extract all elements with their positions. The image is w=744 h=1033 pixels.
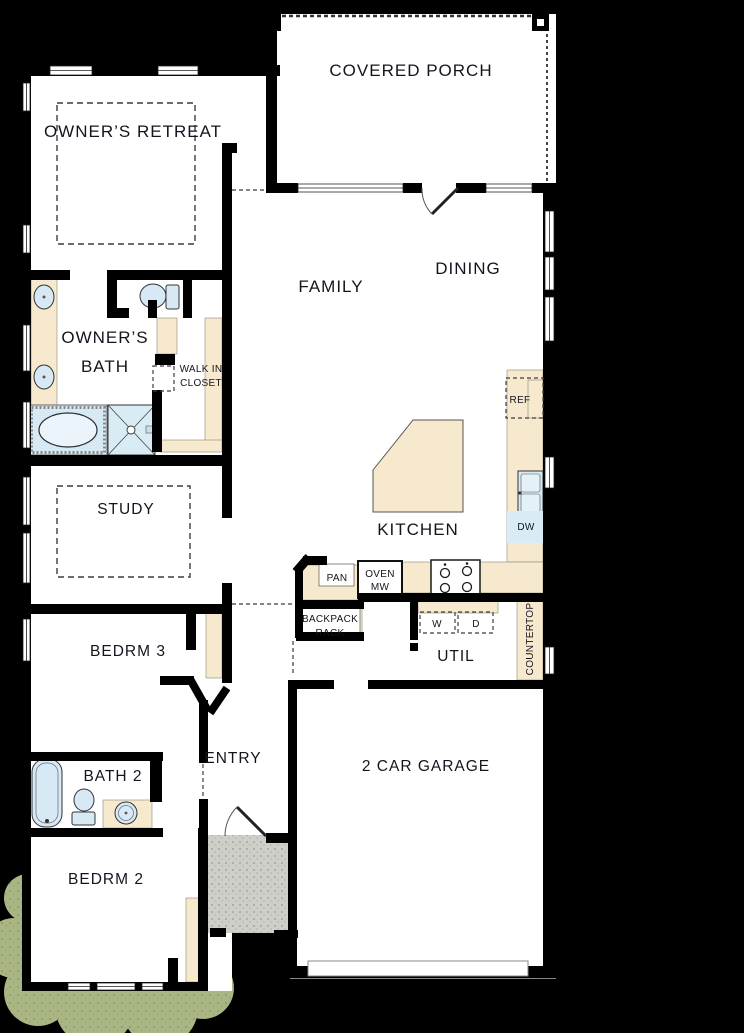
fixture-label-washer: W [432, 619, 442, 630]
floor-plan-drawing: COVERED PORCH OWNER’S RETREAT FAMILY DIN… [0, 0, 744, 1033]
room-label-kitchen: KITCHEN [377, 520, 459, 539]
room-label-walk-in-closet-1: WALK IN [180, 364, 223, 375]
room-label-utility: UTIL [437, 648, 475, 665]
fixture-label-mw: MW [371, 582, 390, 593]
room-label-bedroom3: BEDRM 3 [90, 643, 166, 660]
fixture-label-oven: OVEN [365, 569, 395, 580]
room-label-owners-bath-1: OWNER’S [61, 328, 148, 347]
fixture-label-dw: DW [517, 522, 535, 533]
fixture-label-backpack: BACKPACK [302, 614, 358, 625]
room-label-covered-porch: COVERED PORCH [329, 61, 492, 80]
fixture-label-rack: RACK [316, 628, 345, 639]
fixture-label-pantry: PAN [327, 573, 348, 584]
entry-stoop [206, 835, 289, 933]
cooktop [431, 560, 480, 597]
room-label-study: STUDY [97, 501, 155, 518]
bath2-tub [32, 759, 62, 827]
fixture-label-dryer: D [472, 619, 480, 630]
linen-cabinet [157, 318, 177, 354]
bedroom3-closet [206, 611, 222, 678]
room-label-family: FAMILY [298, 277, 363, 296]
shower [108, 405, 155, 455]
bedroom2-closet [186, 898, 200, 982]
room-label-garage: 2 CAR GARAGE [362, 758, 490, 775]
room-label-owners-retreat: OWNER’S RETREAT [44, 122, 222, 141]
walk-in-closet-shelves-south [160, 440, 222, 452]
fixture-label-ref: REF [510, 395, 531, 406]
room-label-owners-bath-2: BATH [81, 357, 129, 376]
toilet-tank [166, 285, 179, 309]
room-label-walk-in-closet-2: CLOSET [180, 378, 222, 389]
bathtub [29, 405, 107, 455]
room-label-dining: DINING [435, 259, 501, 278]
bath2-sink [115, 802, 137, 824]
garage-door [290, 961, 556, 979]
room-label-entry: ENTRY [204, 750, 261, 767]
fixture-label-countertop: COUNTERTOP [525, 603, 536, 676]
kitchen-sink [518, 471, 543, 515]
room-label-bedroom2: BEDRM 2 [68, 871, 144, 888]
floor-plan: COVERED PORCH OWNER’S RETREAT FAMILY DIN… [0, 0, 744, 1033]
room-label-bath2: BATH 2 [83, 768, 142, 785]
